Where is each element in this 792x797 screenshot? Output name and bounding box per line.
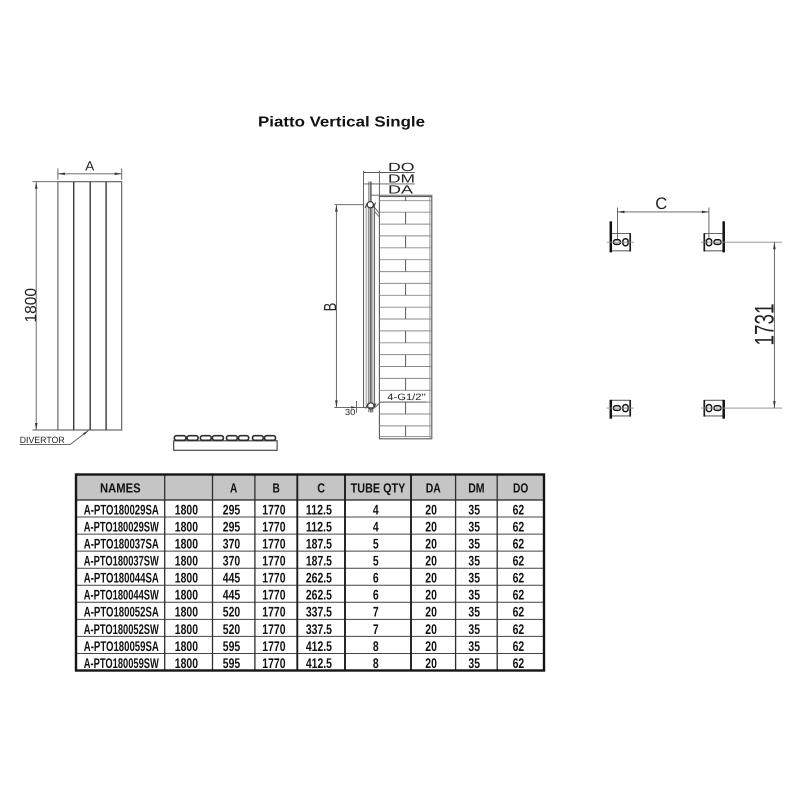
svg-text:1800: 1800 bbox=[175, 621, 198, 637]
svg-text:62: 62 bbox=[513, 536, 525, 552]
svg-text:62: 62 bbox=[513, 587, 525, 603]
svg-text:1770: 1770 bbox=[262, 587, 285, 603]
svg-text:20: 20 bbox=[425, 518, 437, 534]
svg-text:20: 20 bbox=[425, 621, 437, 637]
svg-text:A-PTO180059SA: A-PTO180059SA bbox=[84, 638, 159, 654]
svg-text:112.5: 112.5 bbox=[306, 501, 332, 517]
svg-text:5: 5 bbox=[373, 536, 379, 552]
svg-text:520: 520 bbox=[223, 604, 241, 620]
svg-text:1770: 1770 bbox=[262, 553, 285, 569]
svg-text:C: C bbox=[317, 481, 325, 496]
svg-text:1800: 1800 bbox=[175, 604, 198, 620]
svg-text:A-PTO180044SA: A-PTO180044SA bbox=[84, 570, 159, 586]
svg-text:1800: 1800 bbox=[175, 587, 198, 603]
svg-text:35: 35 bbox=[468, 638, 480, 654]
svg-text:262.5: 262.5 bbox=[306, 587, 332, 603]
svg-text:337.5: 337.5 bbox=[306, 604, 332, 620]
svg-text:1800: 1800 bbox=[175, 518, 198, 534]
svg-text:DO: DO bbox=[513, 481, 528, 496]
svg-text:Piatto Vertical Single: Piatto Vertical Single bbox=[258, 114, 425, 130]
svg-text:4: 4 bbox=[373, 518, 379, 534]
svg-text:A: A bbox=[85, 159, 94, 174]
svg-text:20: 20 bbox=[425, 570, 437, 586]
svg-text:112.5: 112.5 bbox=[306, 518, 332, 534]
svg-text:DA: DA bbox=[388, 183, 413, 197]
svg-text:1770: 1770 bbox=[262, 655, 285, 671]
svg-text:NAMES: NAMES bbox=[100, 481, 141, 496]
svg-text:62: 62 bbox=[513, 501, 525, 517]
svg-text:187.5: 187.5 bbox=[306, 536, 332, 552]
svg-text:1770: 1770 bbox=[262, 518, 285, 534]
svg-text:1800: 1800 bbox=[175, 501, 198, 517]
svg-text:1800: 1800 bbox=[23, 288, 40, 323]
svg-text:35: 35 bbox=[468, 587, 480, 603]
svg-text:4: 4 bbox=[373, 501, 379, 517]
svg-text:20: 20 bbox=[425, 553, 437, 569]
svg-text:520: 520 bbox=[223, 621, 241, 637]
svg-text:62: 62 bbox=[513, 638, 525, 654]
svg-text:445: 445 bbox=[223, 587, 241, 603]
svg-text:35: 35 bbox=[468, 655, 480, 671]
svg-text:35: 35 bbox=[468, 570, 480, 586]
svg-text:20: 20 bbox=[425, 501, 437, 517]
svg-text:35: 35 bbox=[468, 518, 480, 534]
svg-text:35: 35 bbox=[468, 536, 480, 552]
svg-text:370: 370 bbox=[223, 553, 241, 569]
svg-text:445: 445 bbox=[223, 570, 241, 586]
svg-text:62: 62 bbox=[513, 621, 525, 637]
svg-text:TUBE QTY: TUBE QTY bbox=[351, 481, 406, 496]
svg-text:1770: 1770 bbox=[262, 570, 285, 586]
svg-text:35: 35 bbox=[468, 604, 480, 620]
svg-text:187.5: 187.5 bbox=[306, 553, 332, 569]
svg-text:1770: 1770 bbox=[262, 604, 285, 620]
svg-text:337.5: 337.5 bbox=[306, 621, 332, 637]
svg-text:5: 5 bbox=[373, 553, 379, 569]
svg-text:595: 595 bbox=[223, 638, 241, 654]
svg-text:A-PTO180037SA: A-PTO180037SA bbox=[84, 536, 159, 552]
svg-text:A-PTO180059SW: A-PTO180059SW bbox=[84, 655, 160, 671]
svg-text:35: 35 bbox=[468, 501, 480, 517]
svg-text:1770: 1770 bbox=[262, 501, 285, 517]
svg-text:A-PTO180037SW: A-PTO180037SW bbox=[84, 553, 160, 569]
svg-text:30: 30 bbox=[345, 407, 356, 417]
svg-text:62: 62 bbox=[513, 518, 525, 534]
svg-text:595: 595 bbox=[223, 655, 241, 671]
svg-text:20: 20 bbox=[425, 655, 437, 671]
svg-text:35: 35 bbox=[468, 621, 480, 637]
svg-text:A-PTO180029SA: A-PTO180029SA bbox=[84, 501, 159, 517]
svg-text:7: 7 bbox=[373, 604, 379, 620]
svg-text:412.5: 412.5 bbox=[306, 655, 332, 671]
svg-text:370: 370 bbox=[223, 536, 241, 552]
svg-text:295: 295 bbox=[223, 501, 241, 517]
svg-text:295: 295 bbox=[223, 518, 241, 534]
svg-text:A-PTO180052SA: A-PTO180052SA bbox=[84, 604, 159, 620]
svg-text:DA: DA bbox=[426, 481, 441, 496]
svg-text:20: 20 bbox=[425, 604, 437, 620]
svg-text:62: 62 bbox=[513, 553, 525, 569]
svg-text:8: 8 bbox=[373, 655, 379, 671]
svg-text:B: B bbox=[272, 481, 279, 496]
svg-text:7: 7 bbox=[373, 621, 379, 637]
svg-text:1800: 1800 bbox=[175, 553, 198, 569]
svg-text:62: 62 bbox=[513, 604, 525, 620]
svg-text:1800: 1800 bbox=[175, 655, 198, 671]
svg-text:20: 20 bbox=[425, 536, 437, 552]
svg-text:20: 20 bbox=[425, 638, 437, 654]
svg-text:A-PTO180044SW: A-PTO180044SW bbox=[84, 587, 160, 603]
svg-text:C: C bbox=[655, 194, 667, 213]
svg-text:6: 6 bbox=[373, 587, 379, 603]
svg-text:1770: 1770 bbox=[262, 536, 285, 552]
svg-text:62: 62 bbox=[513, 570, 525, 586]
svg-text:1770: 1770 bbox=[262, 621, 285, 637]
svg-text:1800: 1800 bbox=[175, 638, 198, 654]
svg-text:412.5: 412.5 bbox=[306, 638, 332, 654]
svg-text:A-PTO180052SW: A-PTO180052SW bbox=[84, 621, 160, 637]
svg-text:62: 62 bbox=[513, 655, 525, 671]
svg-text:B: B bbox=[320, 303, 340, 312]
svg-text:DIVERTOR: DIVERTOR bbox=[20, 435, 65, 445]
svg-text:4-G1/2'': 4-G1/2'' bbox=[387, 392, 426, 402]
svg-text:DM: DM bbox=[468, 481, 484, 496]
svg-text:1800: 1800 bbox=[175, 536, 198, 552]
svg-text:6: 6 bbox=[373, 570, 379, 586]
svg-text:35: 35 bbox=[468, 553, 480, 569]
svg-text:20: 20 bbox=[425, 587, 437, 603]
svg-text:1770: 1770 bbox=[262, 638, 285, 654]
svg-text:A: A bbox=[230, 481, 238, 496]
svg-text:8: 8 bbox=[373, 638, 379, 654]
svg-text:1731: 1731 bbox=[750, 304, 780, 346]
svg-text:A-PTO180029SW: A-PTO180029SW bbox=[84, 518, 160, 534]
svg-text:262.5: 262.5 bbox=[306, 570, 332, 586]
svg-text:1800: 1800 bbox=[175, 570, 198, 586]
